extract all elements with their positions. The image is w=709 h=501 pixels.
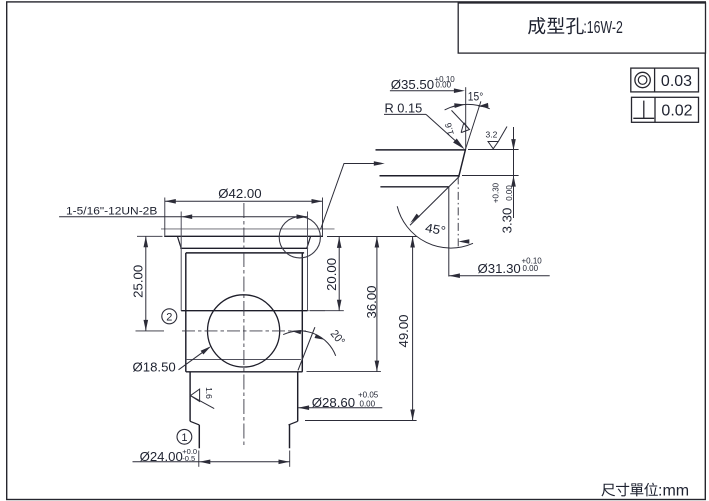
svg-text:1: 1 [181, 432, 187, 444]
svg-text:0.03: 0.03 [661, 73, 692, 90]
svg-text:Ø35.50: Ø35.50 [391, 77, 434, 92]
svg-text:0.00: 0.00 [360, 400, 376, 409]
svg-text:0.00: 0.00 [523, 264, 539, 273]
svg-text:25.00: 25.00 [131, 265, 146, 298]
svg-text:Ø24.00: Ø24.00 [140, 449, 183, 464]
svg-text:0.00: 0.00 [505, 185, 514, 201]
svg-text:1-5/16"-12UN-2B: 1-5/16"-12UN-2B [66, 205, 157, 217]
svg-text:15°: 15° [468, 92, 484, 104]
svg-text:+0.30: +0.30 [491, 182, 500, 203]
svg-text::16W-2: :16W-2 [583, 17, 622, 37]
svg-text:R 0.15: R 0.15 [385, 101, 423, 116]
svg-text:2: 2 [166, 312, 172, 324]
svg-text:Ø31.30: Ø31.30 [478, 261, 521, 276]
svg-text:Ø42.00: Ø42.00 [218, 186, 261, 201]
svg-text:Ø28.60: Ø28.60 [312, 395, 355, 410]
svg-text:20.00: 20.00 [324, 258, 339, 291]
svg-text:0.02: 0.02 [661, 103, 692, 120]
svg-text:3.30: 3.30 [499, 208, 514, 234]
svg-text:Ø18.50: Ø18.50 [133, 360, 176, 375]
svg-text:0.00: 0.00 [436, 81, 452, 90]
svg-text:-0.5: -0.5 [182, 454, 195, 463]
svg-text:49.00: 49.00 [396, 314, 411, 347]
svg-text:+0.05: +0.05 [358, 390, 379, 399]
svg-text::mm: :mm [658, 482, 689, 499]
svg-text:3.2: 3.2 [486, 130, 498, 140]
svg-text:1.6: 1.6 [204, 387, 214, 399]
svg-text:36.00: 36.00 [364, 285, 379, 318]
